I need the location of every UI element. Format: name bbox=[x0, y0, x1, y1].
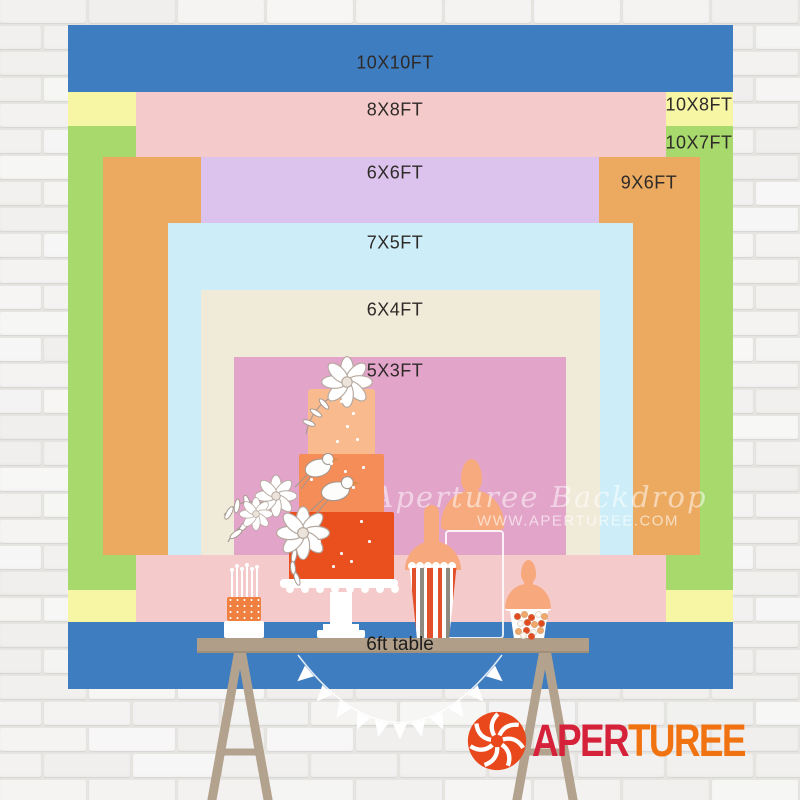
aperturee-logo: APERTUREE bbox=[466, 710, 792, 772]
product-image: Aperturee Backdrop WWW.APERTUREE.COM bbox=[0, 0, 800, 800]
label-8x8ft: 8X8FT bbox=[367, 100, 424, 121]
logo-text-orange: TUREE bbox=[628, 715, 745, 766]
label-10x8ft: 10X8FT bbox=[665, 95, 732, 116]
logo-text-red: APER bbox=[532, 715, 628, 766]
label-5x3ft: 5X3FT bbox=[367, 361, 424, 382]
label-7x5ft: 7X5FT bbox=[367, 233, 424, 254]
label-6x6ft: 6X6FT bbox=[367, 163, 424, 184]
aperture-shutter-icon bbox=[466, 710, 528, 772]
label-9x6ft: 9X6FT bbox=[621, 173, 678, 194]
label-6x4ft: 6X4FT bbox=[367, 300, 424, 321]
label-10x10ft: 10X10FT bbox=[356, 53, 434, 74]
label-6ft-table: 6ft table bbox=[366, 634, 434, 656]
logo-wordmark: APERTUREE bbox=[532, 715, 745, 767]
label-10x7ft: 10X7FT bbox=[665, 133, 732, 154]
